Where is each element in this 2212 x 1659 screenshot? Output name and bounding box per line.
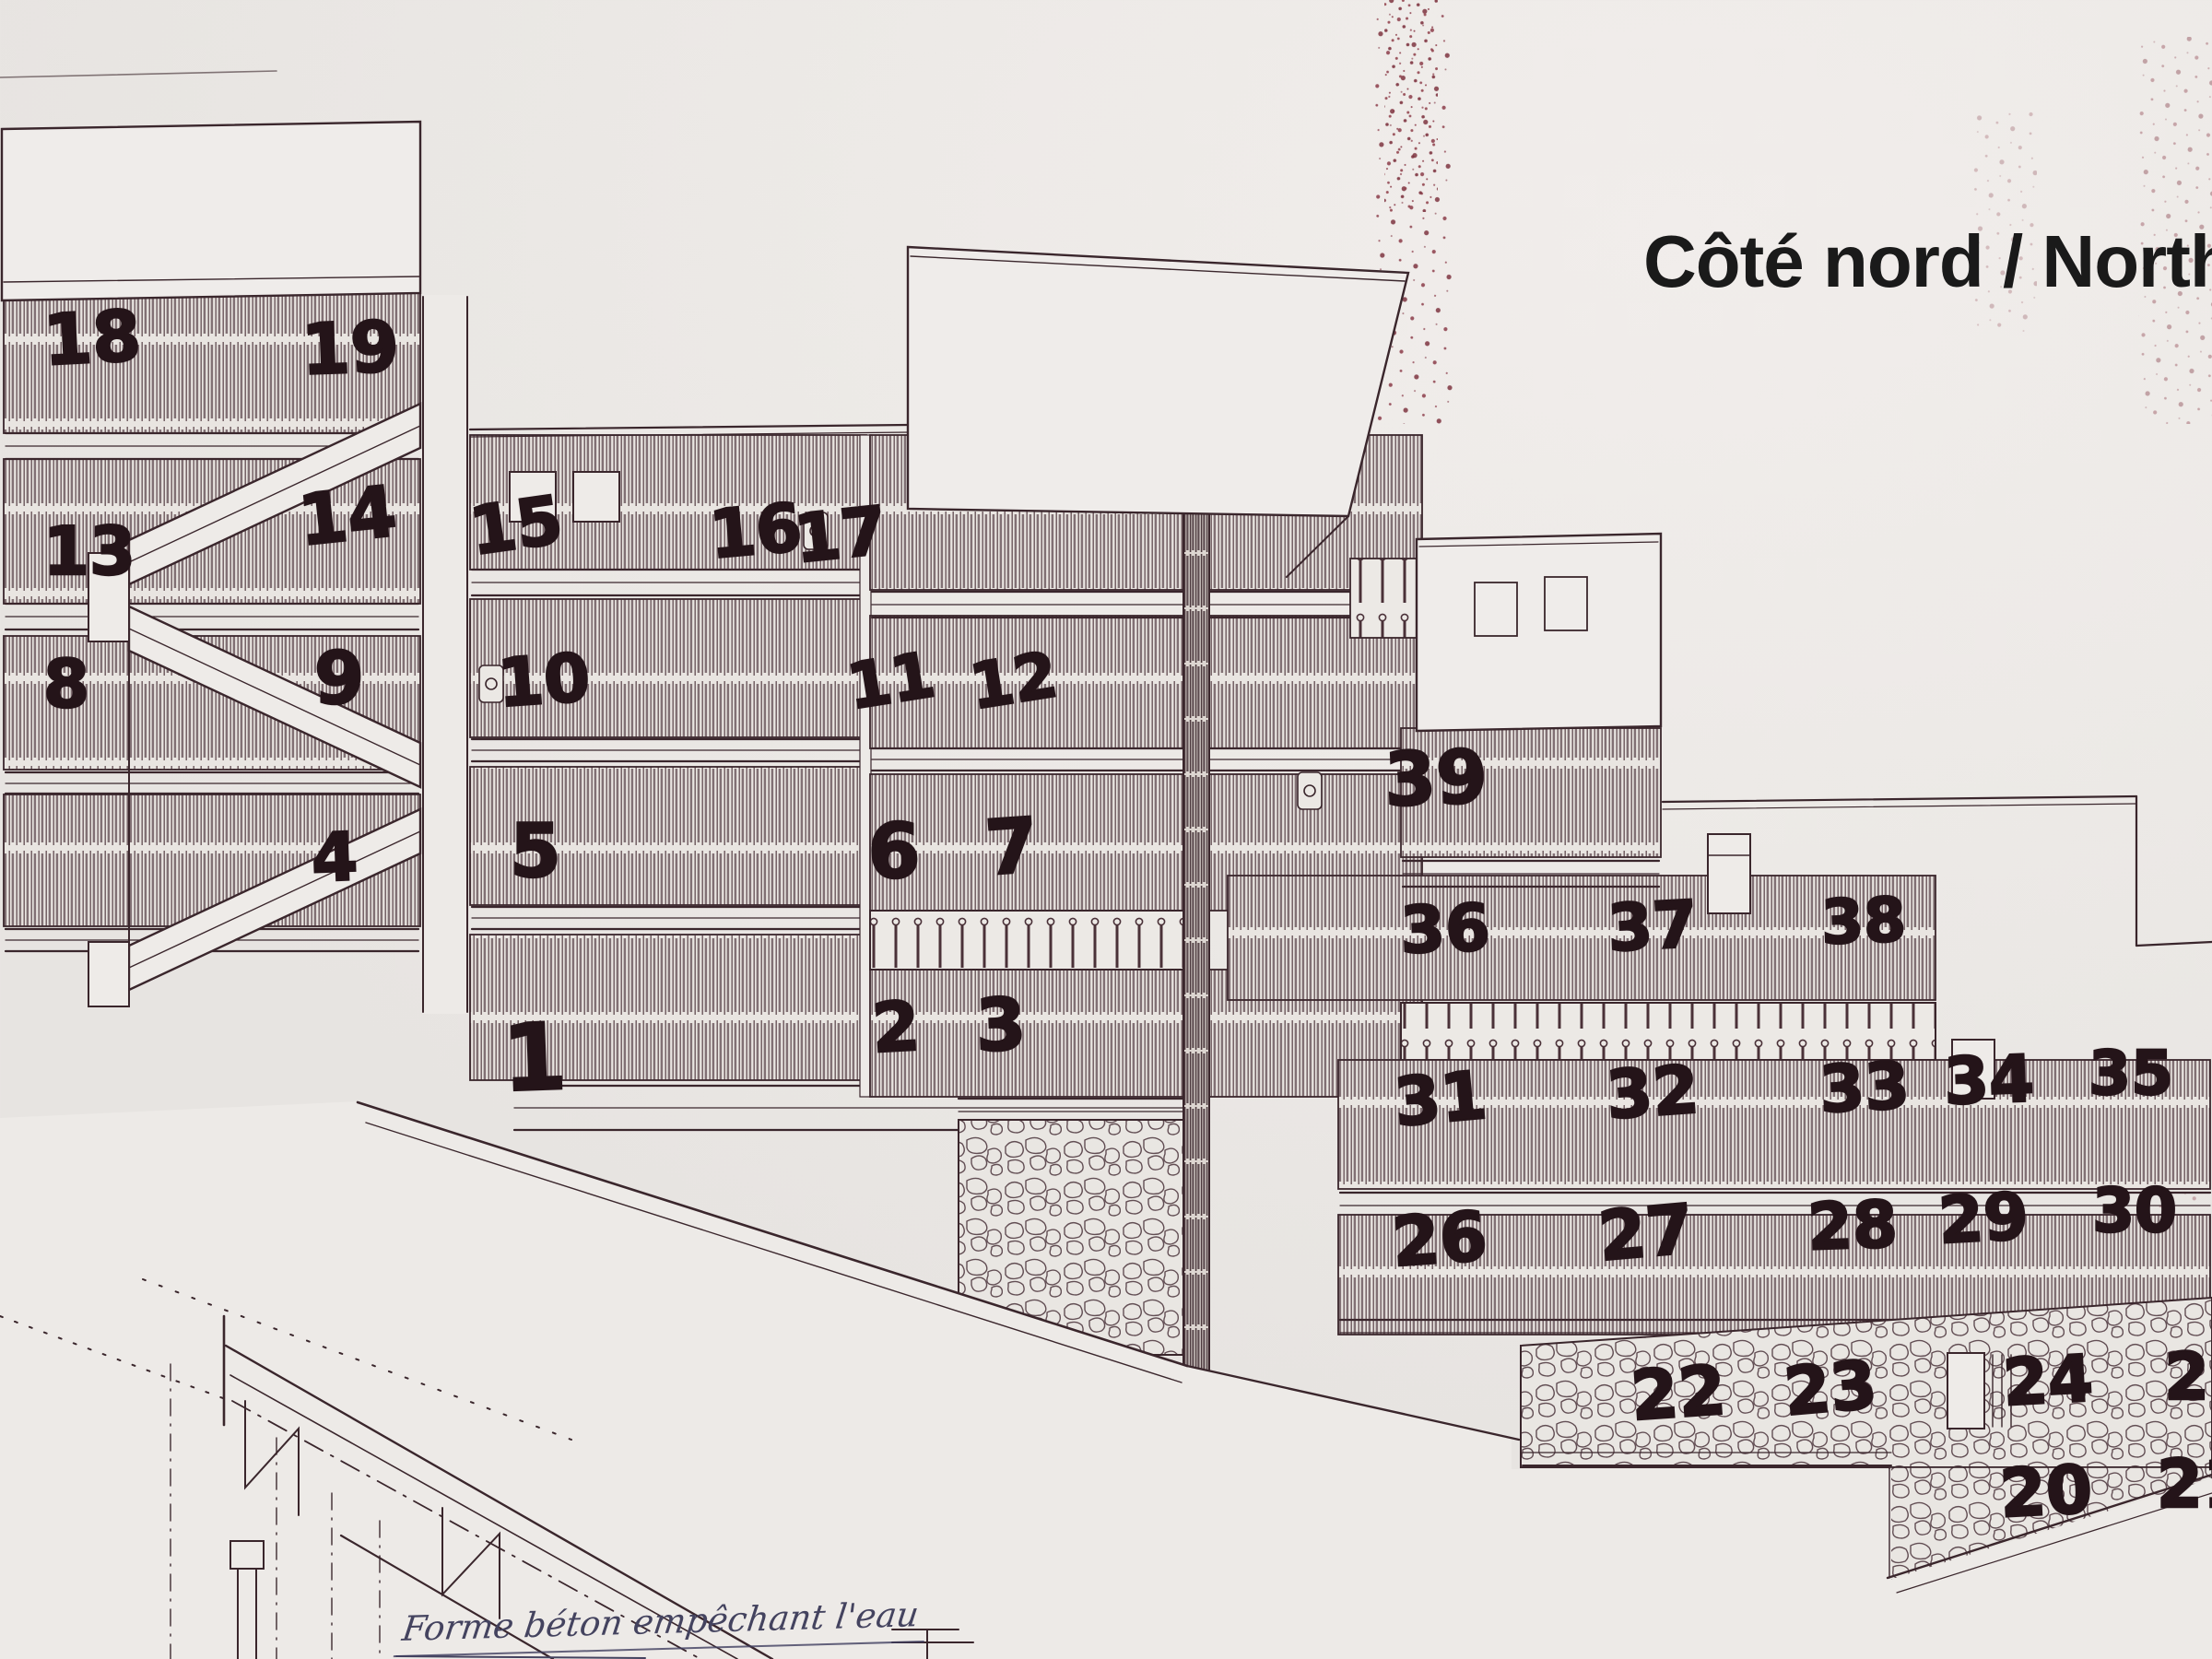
unit-label-14: 14 bbox=[295, 477, 399, 557]
unit-label-3: 3 bbox=[975, 989, 1028, 1063]
unit-label-34: 34 bbox=[1943, 1046, 2035, 1113]
unit-label-38: 38 bbox=[1820, 889, 1907, 953]
unit-label-23: 23 bbox=[1782, 1351, 1879, 1425]
unit-label-36: 36 bbox=[1399, 895, 1491, 962]
unit-label-26: 26 bbox=[1390, 1202, 1489, 1277]
unit-label-5: 5 bbox=[510, 815, 561, 888]
unit-label-9: 9 bbox=[314, 643, 364, 715]
unit-label-35: 35 bbox=[2088, 1043, 2173, 1104]
unit-label-8: 8 bbox=[43, 651, 89, 717]
unit-label-28: 28 bbox=[1806, 1192, 1899, 1259]
unit-label-21: 21 bbox=[2157, 1451, 2212, 1517]
unit-label-18: 18 bbox=[41, 300, 143, 375]
unit-label-22: 22 bbox=[1629, 1356, 1728, 1430]
unit-label-2: 2 bbox=[870, 993, 921, 1064]
unit-label-13: 13 bbox=[43, 518, 135, 584]
unit-label-19: 19 bbox=[300, 312, 400, 385]
unit-label-15: 15 bbox=[465, 486, 566, 564]
unit-label-24: 24 bbox=[2002, 1346, 2095, 1415]
unit-label-11: 11 bbox=[843, 644, 939, 720]
scanned-elevation-page: Côté nord / North sid 181913141516178910… bbox=[0, 0, 2212, 1659]
unit-label-33: 33 bbox=[1818, 1053, 1912, 1122]
unit-label-25: 25 bbox=[2164, 1345, 2212, 1409]
unit-label-29: 29 bbox=[1937, 1183, 2030, 1253]
unit-label-30: 30 bbox=[2092, 1181, 2177, 1241]
unit-label-20: 20 bbox=[1998, 1455, 2094, 1526]
unit-label-32: 32 bbox=[1605, 1056, 1701, 1129]
unit-label-16: 16 bbox=[707, 494, 805, 568]
unit-label-12: 12 bbox=[966, 644, 1062, 720]
unit-label-6: 6 bbox=[867, 815, 920, 890]
unit-label-10: 10 bbox=[496, 644, 593, 717]
unit-label-7: 7 bbox=[983, 808, 1041, 888]
unit-label-37: 37 bbox=[1606, 891, 1700, 960]
unit-label-17: 17 bbox=[791, 497, 889, 572]
unit-labels-layer: 1819131415161789101112394567363738123313… bbox=[0, 0, 2212, 1659]
unit-label-4: 4 bbox=[311, 823, 359, 891]
unit-label-1: 1 bbox=[500, 1011, 568, 1105]
unit-label-39: 39 bbox=[1383, 740, 1488, 818]
unit-label-27: 27 bbox=[1595, 1195, 1696, 1272]
unit-label-31: 31 bbox=[1392, 1062, 1489, 1135]
